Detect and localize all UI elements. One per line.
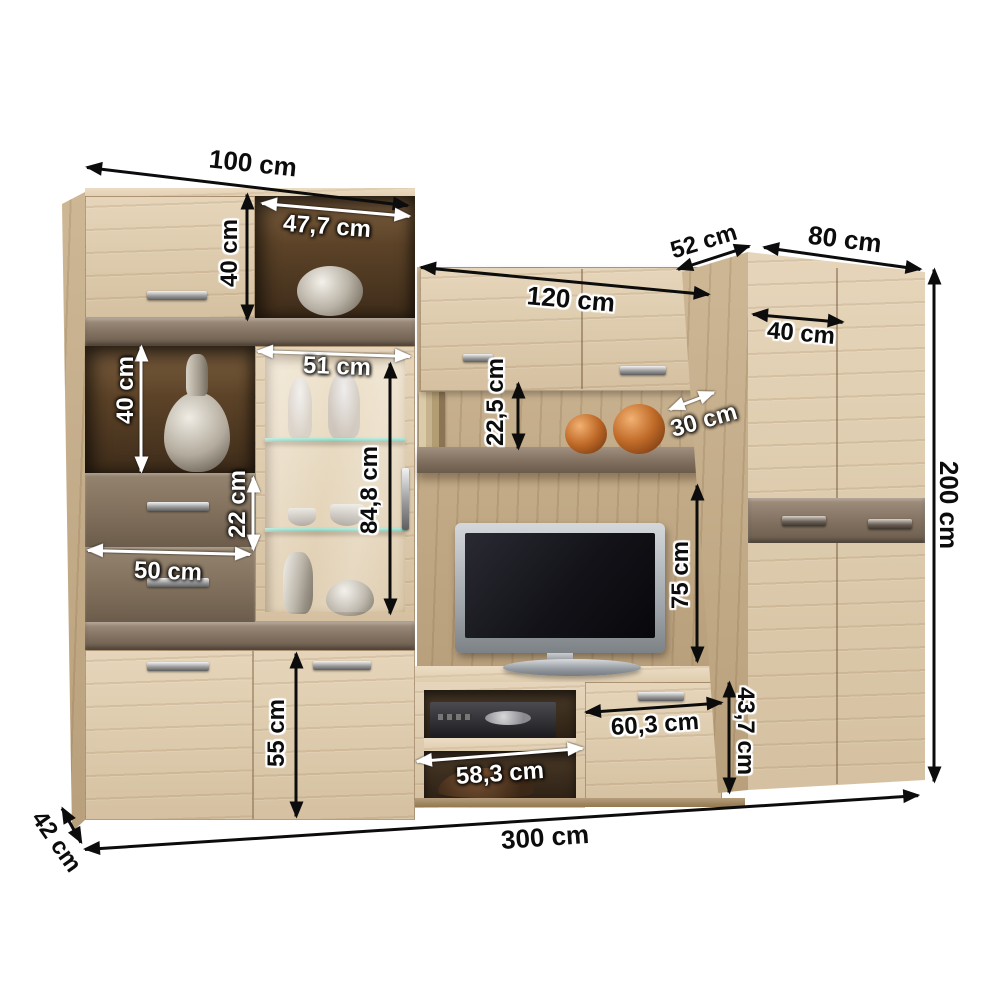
left-bottom-door-2-handle <box>313 661 371 670</box>
dim-glass-section-height-label: 84,8 cm <box>358 446 382 534</box>
furniture-dimension-diagram: 100 cm 47,7 cm 40 cm 40 cm 51 cm 22 cm 5… <box>0 0 1000 1000</box>
dim-bench-niche-width-label: 58,3 cm <box>455 759 545 789</box>
dim-bench-height-arrow <box>728 683 731 793</box>
dim-right-unit-depth-label: 52 cm <box>668 221 740 264</box>
dvd-player-buttons <box>438 714 472 720</box>
right-band-handle-left <box>782 516 826 526</box>
dim-right-door-width-label: 40 cm <box>766 319 836 349</box>
dim-drawer-height-label: 22 cm <box>226 470 250 538</box>
left-bottom-door-1-handle <box>147 662 209 671</box>
left-accent-band-lower <box>85 622 415 650</box>
dim-total-height-label: 200 cm <box>936 461 962 549</box>
copper-ball-small <box>565 414 607 454</box>
dim-shelf-clearance-label: 22,5 cm <box>484 358 508 446</box>
drawer-upper-handle <box>147 502 209 511</box>
dvd-player <box>430 702 556 738</box>
dim-tv-niche-height-arrow <box>696 486 699 662</box>
books <box>419 392 445 448</box>
left-top-door-handle <box>147 291 207 300</box>
left-unit-side-panel <box>62 192 85 832</box>
dim-left-top-cabinet-height-label: 40 cm <box>218 219 242 287</box>
right-band-handle-right <box>868 519 912 529</box>
dim-glass-section-height-arrow <box>389 364 392 614</box>
dim-bench-door-width-label: 60,3 cm <box>610 710 700 740</box>
wall-cabinet-right-handle <box>620 366 666 375</box>
silver-egg-ornament <box>297 266 363 316</box>
left-bottom-door-1 <box>85 650 253 820</box>
dim-wall-cabinet-width-label: 120 cm <box>526 282 616 316</box>
dim-tv-niche-height-label: 75 cm <box>669 541 693 609</box>
glass-reflection <box>265 356 405 612</box>
dim-drawer-width-label: 50 cm <box>134 559 203 585</box>
dim-left-mid-niche-height-label: 40 cm <box>114 356 138 424</box>
dim-left-top-cabinet-height-arrow <box>246 195 249 320</box>
dim-drawer-height-arrow <box>252 478 255 550</box>
bench-bottom-edge <box>415 798 745 807</box>
bench-flap-handle <box>638 692 684 701</box>
dim-shelf-clearance-arrow <box>517 384 520 449</box>
dim-right-unit-width-label: 80 cm <box>807 222 883 257</box>
dim-bottom-door-height-arrow <box>295 654 298 817</box>
dim-bench-height-label: 43,7 cm <box>733 687 757 775</box>
dim-glass-door-width-label: 51 cm <box>303 354 372 380</box>
left-accent-band-upper <box>85 318 415 346</box>
silver-vase-neck <box>186 354 208 396</box>
dim-left-mid-niche-height-arrow <box>140 347 143 472</box>
dim-left-top-niche-width-label: 47,7 cm <box>282 212 372 242</box>
dvd-player-disc <box>485 711 531 725</box>
copper-ball-large <box>613 404 665 454</box>
glass-display-handle <box>402 468 409 530</box>
dim-left-unit-width-label: 100 cm <box>208 145 298 180</box>
dim-bottom-door-height-label: 55 cm <box>265 699 289 767</box>
tv-screen <box>465 533 655 638</box>
tv-stand-base <box>503 659 641 676</box>
dim-total-width-label: 300 cm <box>500 821 590 853</box>
